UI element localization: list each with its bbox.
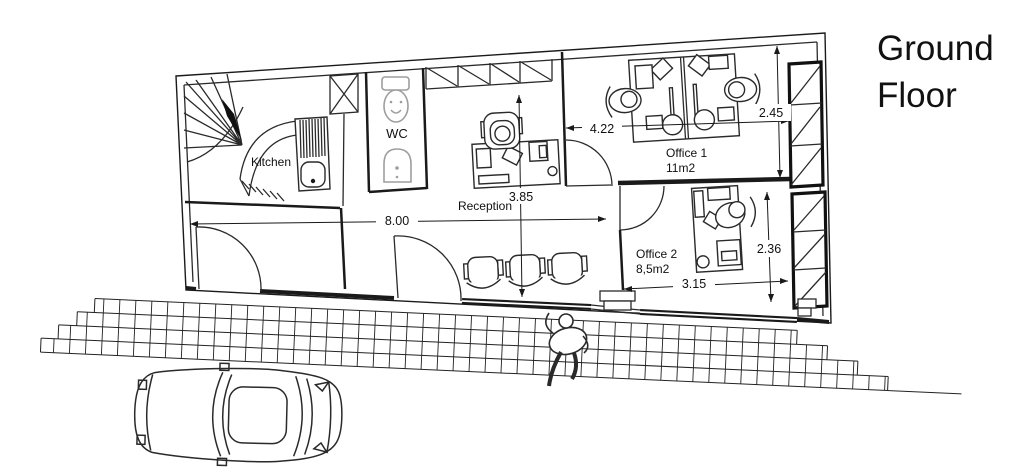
kitchen-label: Kitchen xyxy=(251,155,291,169)
car-top-view-icon xyxy=(133,361,343,468)
office2-area-label: 8,5m2 xyxy=(636,262,670,276)
cabinet-unit-2 xyxy=(792,192,827,308)
keyboard-icon xyxy=(718,107,735,121)
office2-label: Office 2 xyxy=(636,247,677,261)
bottom-wall-segment xyxy=(186,288,196,289)
wc-label: WC xyxy=(386,126,408,141)
dim-label-office1-depth: 2.45 xyxy=(759,106,783,120)
office1-area-label: 11m2 xyxy=(666,161,695,175)
page-title-line2: Floor xyxy=(877,76,957,115)
toilet-tank-icon xyxy=(382,77,409,90)
floor-plan-canvas: 8.00 3.85 4.22 2.45 2.36 xyxy=(0,0,1024,472)
sink-drain xyxy=(311,179,315,183)
reception-label: Reception xyxy=(458,199,512,213)
dim-label-reception: 3.85 xyxy=(509,190,533,204)
person-head xyxy=(495,126,511,142)
kitchen-sink-icon xyxy=(301,162,325,187)
page-title-line1: Ground xyxy=(877,29,994,68)
cabinet-unit-1 xyxy=(789,62,823,187)
keyboard-icon xyxy=(646,115,663,129)
stool-icon xyxy=(548,166,557,175)
waiting-chairs xyxy=(463,252,588,289)
dim-label-office2-depth: 2.36 xyxy=(757,242,781,256)
dim-label-office1-width: 4.22 xyxy=(590,122,614,136)
office1-label: Office 1 xyxy=(666,146,707,160)
floor-plan-page: 8.00 3.85 4.22 2.45 2.36 xyxy=(0,0,1024,472)
dim-label-hall: 8.00 xyxy=(385,214,409,228)
toilet-bowl-icon xyxy=(384,90,408,122)
dim-label-office2-width: 3.15 xyxy=(682,277,706,291)
stool-icon xyxy=(697,255,710,268)
